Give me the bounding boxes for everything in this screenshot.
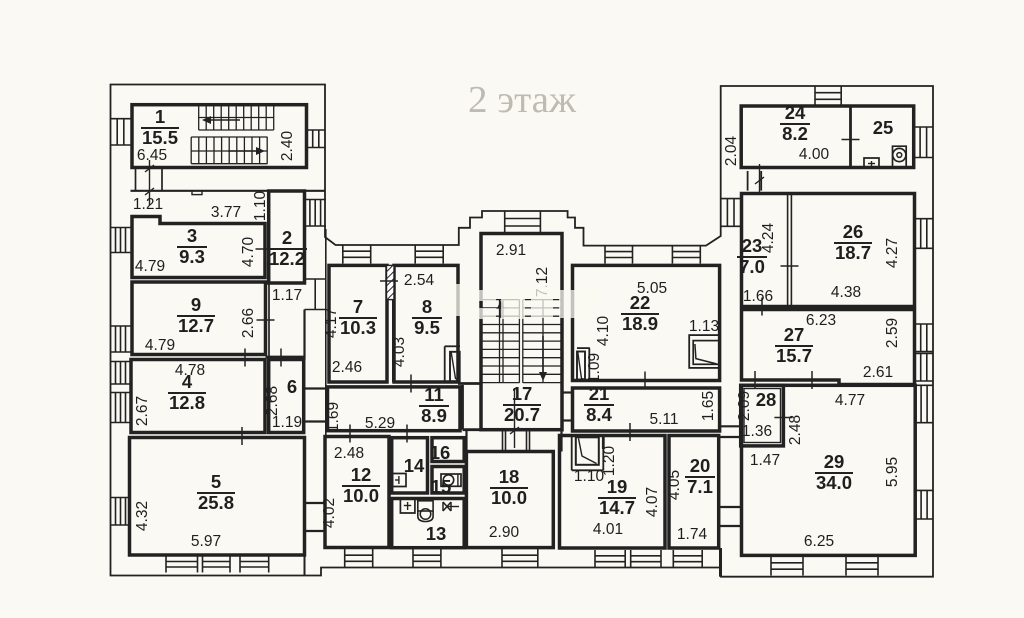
svg-text:5.95: 5.95: [884, 457, 901, 487]
svg-text:4.79: 4.79: [145, 337, 175, 354]
svg-text:1.19: 1.19: [272, 414, 302, 431]
svg-text:1.47: 1.47: [750, 452, 780, 469]
svg-text:14: 14: [404, 455, 425, 476]
svg-text:2: 2: [282, 227, 292, 248]
svg-text:2.46: 2.46: [332, 359, 362, 376]
svg-text:4.00: 4.00: [799, 146, 830, 163]
svg-text:3: 3: [187, 225, 197, 246]
svg-text:5.05: 5.05: [637, 280, 667, 297]
svg-text:5: 5: [211, 471, 221, 492]
svg-text:1.20: 1.20: [601, 446, 618, 477]
svg-text:34.0: 34.0: [816, 472, 852, 493]
svg-text:10.0: 10.0: [491, 487, 527, 508]
svg-text:1.69: 1.69: [325, 402, 342, 432]
svg-text:18: 18: [499, 466, 520, 487]
svg-text:1.10: 1.10: [252, 191, 269, 222]
svg-text:1.66: 1.66: [743, 288, 773, 305]
svg-text:1.10: 1.10: [574, 468, 605, 485]
svg-text:4.10: 4.10: [595, 316, 612, 347]
svg-text:15.7: 15.7: [776, 345, 812, 366]
svg-text:2.54: 2.54: [404, 272, 435, 289]
svg-text:2.59: 2.59: [884, 318, 901, 348]
svg-text:4.79: 4.79: [135, 258, 165, 275]
svg-text:2.40: 2.40: [279, 131, 296, 162]
svg-text:6.23: 6.23: [806, 312, 836, 329]
svg-text:2.48: 2.48: [787, 415, 804, 445]
svg-text:7.1: 7.1: [687, 476, 713, 497]
svg-text:9.5: 9.5: [414, 317, 440, 338]
svg-text:4.78: 4.78: [175, 362, 205, 379]
svg-text:9: 9: [191, 294, 201, 315]
svg-text:24: 24: [785, 102, 806, 123]
svg-text:1.09: 1.09: [586, 353, 603, 383]
svg-text:5.29: 5.29: [365, 415, 395, 432]
svg-text:1.65: 1.65: [700, 391, 717, 421]
svg-text:1.74: 1.74: [677, 526, 708, 543]
svg-text:1.13: 1.13: [689, 318, 719, 335]
svg-text:2.91: 2.91: [496, 242, 526, 259]
svg-text:25.8: 25.8: [198, 492, 234, 513]
svg-text:2.61: 2.61: [863, 364, 893, 381]
svg-text:2.66: 2.66: [240, 308, 257, 338]
svg-text:1.36: 1.36: [742, 423, 772, 440]
svg-text:12.8: 12.8: [169, 392, 205, 413]
svg-text:8.4: 8.4: [586, 404, 612, 425]
svg-text:18.9: 18.9: [622, 313, 658, 334]
svg-text:2 этаж: 2 этаж: [468, 79, 577, 121]
svg-text:4.24: 4.24: [760, 223, 777, 254]
svg-text:3.77: 3.77: [211, 204, 241, 221]
svg-text:4.38: 4.38: [831, 284, 861, 301]
svg-text:6: 6: [287, 376, 297, 397]
svg-text:13: 13: [426, 523, 447, 544]
svg-text:26: 26: [843, 221, 864, 242]
svg-text:4.07: 4.07: [644, 487, 661, 517]
svg-text:15.5: 15.5: [142, 127, 178, 148]
svg-text:10.0: 10.0: [343, 485, 379, 506]
svg-text:2.67: 2.67: [134, 396, 151, 426]
svg-text:5.97: 5.97: [191, 533, 221, 550]
svg-text:15: 15: [431, 476, 452, 497]
svg-text:2.90: 2.90: [489, 524, 520, 541]
svg-text:8: 8: [422, 296, 432, 317]
svg-text:17: 17: [512, 383, 533, 404]
svg-text:11: 11: [424, 384, 444, 405]
svg-text:21: 21: [589, 383, 610, 404]
svg-text:6.25: 6.25: [804, 533, 834, 550]
svg-text:18.7: 18.7: [835, 242, 871, 263]
svg-text:29: 29: [824, 451, 845, 472]
svg-text:28: 28: [756, 389, 777, 410]
svg-text:25: 25: [873, 117, 894, 138]
svg-text:4.17: 4.17: [323, 308, 340, 338]
svg-text:7.0: 7.0: [739, 256, 765, 277]
svg-text:4.77: 4.77: [835, 392, 865, 409]
svg-text:8.9: 8.9: [421, 405, 447, 426]
svg-text:2.68: 2.68: [264, 386, 281, 416]
svg-text:4.02: 4.02: [321, 498, 338, 528]
svg-text:1: 1: [155, 106, 165, 127]
svg-text:4.32: 4.32: [134, 501, 151, 531]
svg-text:12.7: 12.7: [178, 315, 214, 336]
svg-text:8.2: 8.2: [782, 123, 808, 144]
svg-text:14.7: 14.7: [599, 497, 635, 518]
svg-text:4.01: 4.01: [593, 521, 623, 538]
svg-text:9.3: 9.3: [179, 246, 205, 267]
svg-text:12.2: 12.2: [269, 248, 305, 269]
svg-text:20.7: 20.7: [504, 404, 540, 425]
svg-text:16: 16: [430, 442, 451, 463]
svg-text:2.04: 2.04: [723, 136, 740, 167]
svg-text:4.05: 4.05: [666, 470, 683, 500]
svg-text:2.09: 2.09: [736, 391, 753, 421]
svg-text:12: 12: [351, 464, 372, 485]
svg-text:4.03: 4.03: [391, 337, 408, 367]
svg-text:2.48: 2.48: [334, 445, 364, 462]
svg-text:20: 20: [690, 455, 711, 476]
svg-text:1.21: 1.21: [133, 196, 163, 213]
svg-text:4.27: 4.27: [884, 238, 901, 268]
svg-text:7: 7: [353, 296, 363, 317]
svg-text:1.17: 1.17: [272, 287, 302, 304]
svg-text:4.70: 4.70: [240, 237, 257, 268]
svg-text:6.45: 6.45: [137, 147, 167, 164]
svg-text:5.11: 5.11: [649, 411, 678, 428]
svg-text:10.3: 10.3: [340, 317, 376, 338]
svg-text:27: 27: [784, 324, 805, 345]
svg-text:19: 19: [607, 476, 628, 497]
